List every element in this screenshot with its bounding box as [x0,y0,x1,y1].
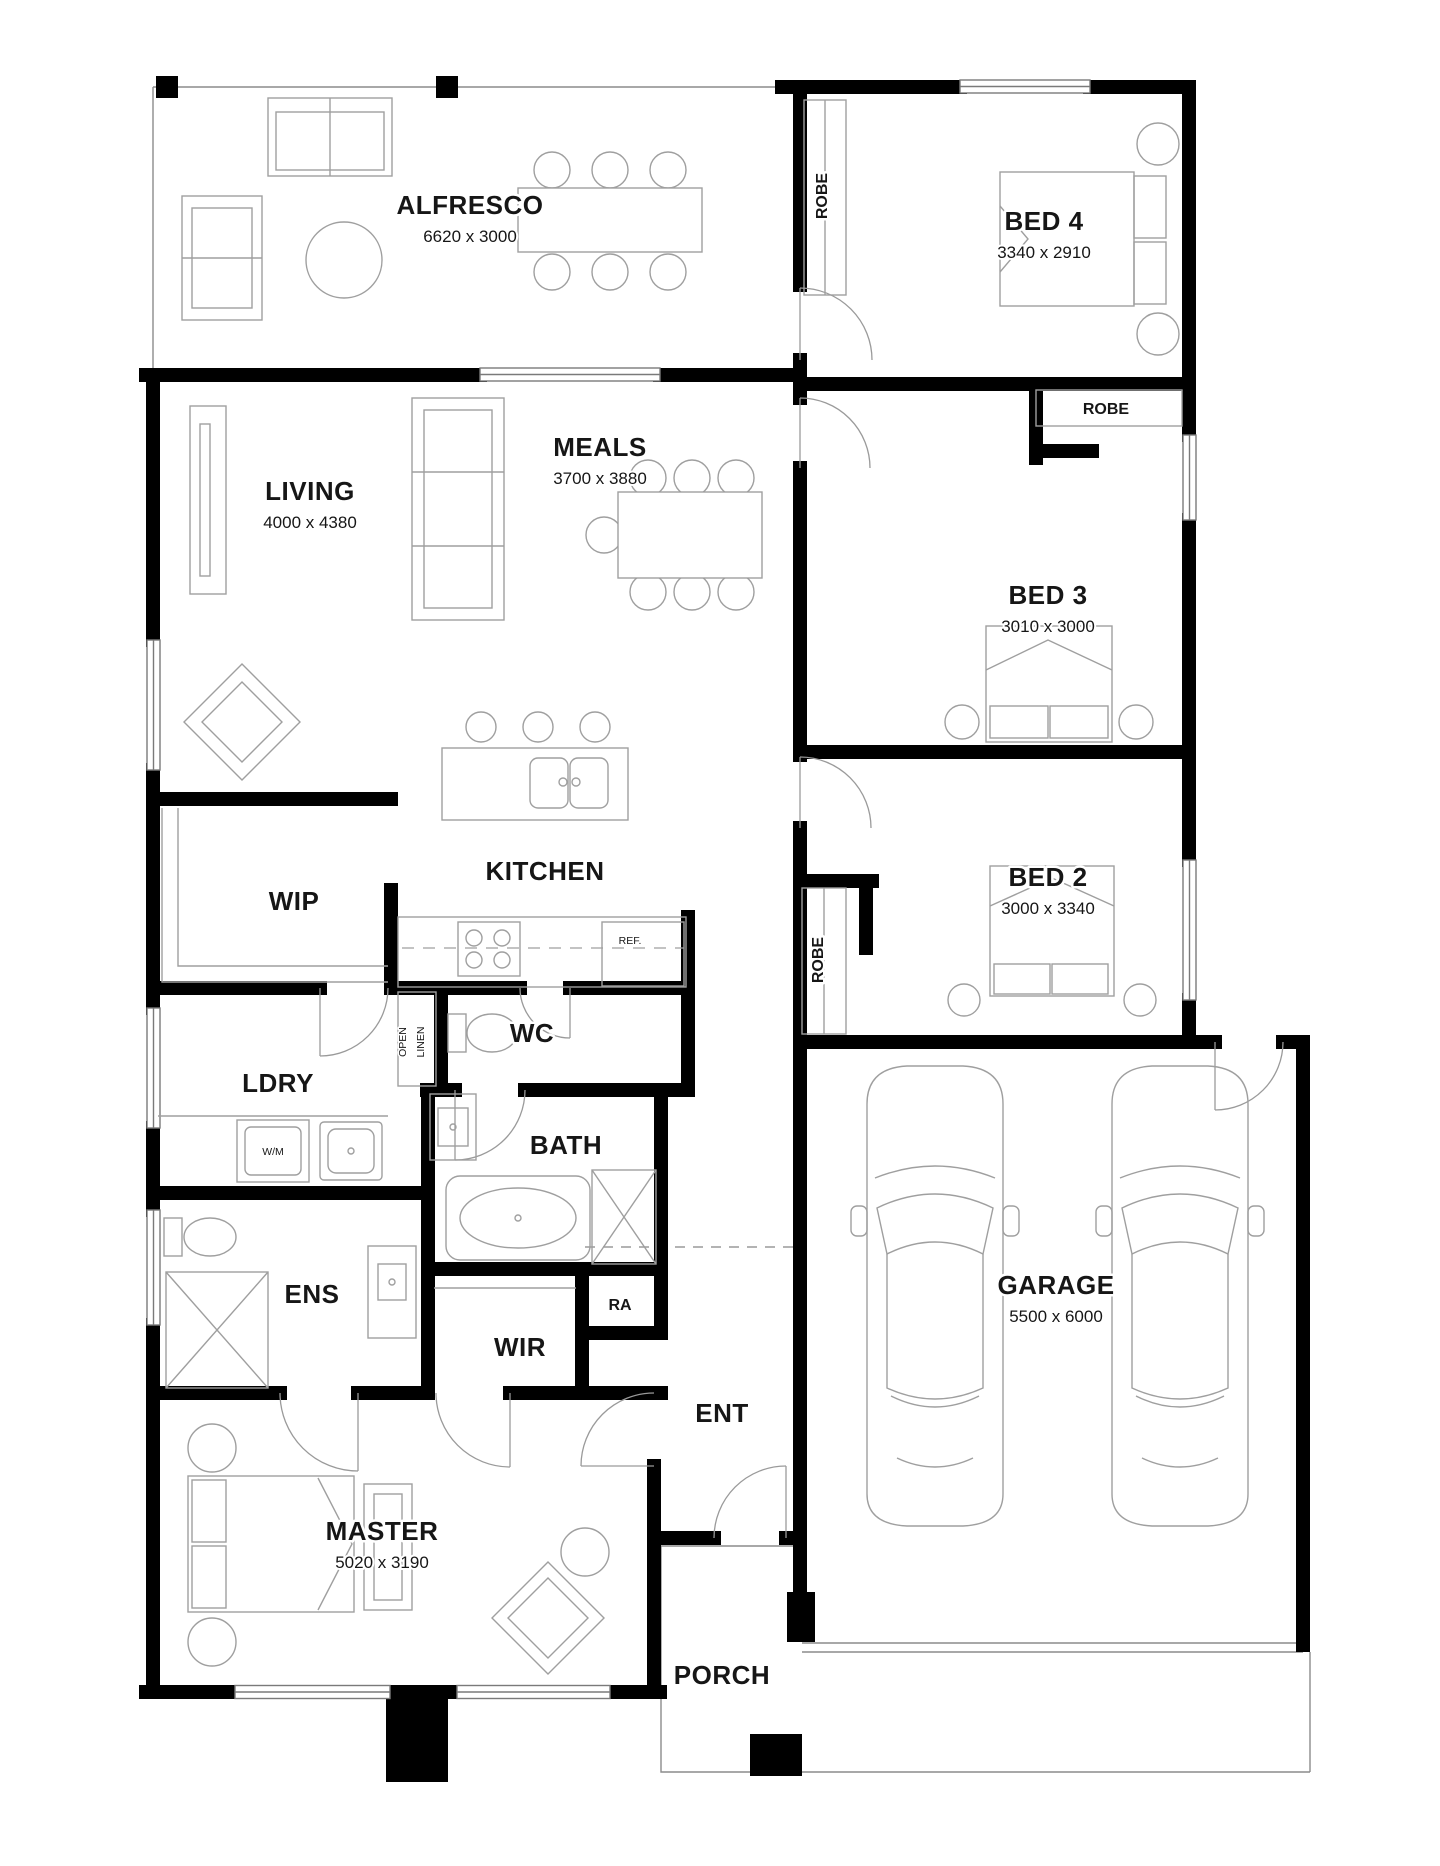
room-dims-bed4: 3340 x 2910 [997,243,1091,262]
alfresco-post [436,76,458,98]
room-label-wip: WIP [269,886,320,916]
alfresco-post [156,76,178,98]
kitchen-bench [398,917,686,987]
ens-toilet [184,1218,236,1256]
robe-label-bed2: ROBE [810,937,827,984]
open-linen-label-1: OPEN [397,1027,409,1057]
window-bed4-top [960,80,1090,93]
floor-plan-drawing: ALFRESCO 6620 x 3000 BED 4 3340 x 2910 R… [0,0,1440,1866]
room-label-living: LIVING [265,476,355,506]
room-label-garage: GARAGE [997,1270,1114,1300]
room-label-bed2: BED 2 [1008,862,1087,892]
door-bed4 [800,288,872,360]
master-furniture [188,1424,609,1674]
master-pier [386,1696,448,1782]
room-label-meals: MEALS [553,432,647,462]
room-dims-garage: 5500 x 6000 [1009,1307,1103,1326]
window-ldry-left [147,1008,160,1128]
door-ldry [320,988,388,1056]
door-entry [714,1466,786,1538]
washing-machine-label: W/M [262,1146,284,1158]
bath-fixtures [430,1094,656,1264]
laundry-trough [328,1129,374,1173]
door-bed3 [800,398,870,468]
room-label-kitchen: KITCHEN [485,856,604,886]
room-label-ens: ENS [285,1279,340,1309]
furniture [158,98,1264,1674]
wc-toilet [448,1014,517,1052]
bed3-furniture [945,626,1153,742]
room-label-ent: ENT [695,1398,749,1428]
door-garage-side [1215,1042,1283,1110]
room-label-wc: WC [510,1018,554,1048]
window-bed3-right [1183,435,1196,520]
room-dims-meals: 3700 x 3880 [553,469,647,488]
door-master [581,1393,654,1466]
room-label-porch: PORCH [674,1660,770,1690]
room-dims-master: 5020 x 3190 [335,1553,429,1572]
window-alfresco-wall [480,368,660,381]
window-living-left [147,640,160,770]
door-bed2 [800,757,871,828]
room-label-bath: BATH [530,1130,602,1160]
floor-plan-page: ALFRESCO 6620 x 3000 BED 4 3340 x 2910 R… [0,0,1440,1866]
fridge-space [602,922,684,986]
garage-wall-cap [787,1592,815,1642]
door-bath [455,1090,525,1160]
door-wir [436,1393,510,1467]
kitchen-island [442,712,628,820]
door-ens [280,1393,358,1471]
bed4-furniture [1000,123,1179,355]
room-label-alfresco: ALFRESCO [397,190,544,220]
window-master-1 [235,1686,390,1699]
open-linen-label-2: LINEN [415,1027,427,1058]
living-furniture [184,398,504,780]
room-dims-living: 4000 x 4380 [263,513,357,532]
room-dims-bed3: 3010 x 3000 [1001,617,1095,636]
robe-label-bed4: ROBE [814,173,831,220]
room-label-wir: WIR [494,1332,546,1362]
ens-basin [378,1264,406,1300]
fridge-label: REF. [619,935,642,947]
robe-label-bed3: ROBE [1083,401,1130,418]
window-master-2 [457,1686,610,1699]
room-dims-bed2: 3000 x 3340 [1001,899,1095,918]
window-ens-left [147,1210,160,1325]
bath-basin [438,1108,468,1146]
room-dims-alfresco: 6620 x 3000 [423,227,517,246]
room-label-bed3: BED 3 [1008,580,1087,610]
window-bed2-right [1183,860,1196,1000]
room-label-ldry: LDRY [242,1068,314,1098]
room-label-bed4: BED 4 [1004,206,1083,236]
room-label-master: MASTER [326,1516,439,1546]
porch-pier [750,1734,802,1776]
room-label-ra: RA [608,1297,632,1314]
